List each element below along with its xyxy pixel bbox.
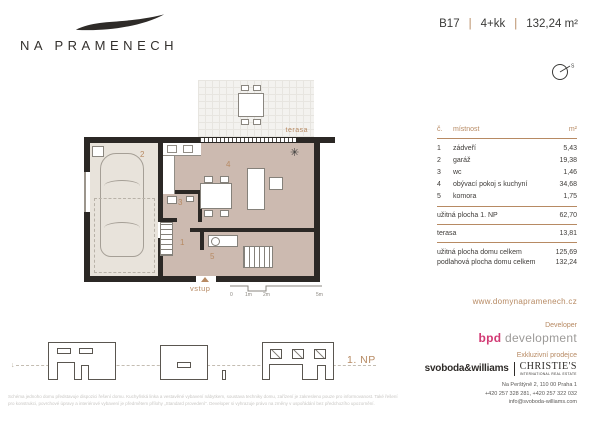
svoboda-williams-logo: svoboda&williams — [425, 363, 509, 374]
table-row: 3 wc 1,46 — [437, 166, 577, 178]
terrace-chair — [253, 119, 261, 125]
christies-wordmark: CHRISTIE'S — [520, 361, 577, 372]
dining-table — [200, 183, 232, 209]
terrace-label: terasa — [286, 127, 308, 134]
dining-chair — [204, 210, 213, 217]
terrace-chair — [241, 85, 249, 91]
dining-chair — [220, 176, 229, 183]
window — [270, 349, 282, 359]
row-area: 1,75 — [563, 193, 577, 200]
unit-id: B17 — [439, 18, 459, 30]
seller-label: Exkluzivní prodejce — [517, 352, 577, 359]
table-row: 2 garáž 19,38 — [437, 154, 577, 166]
subtotal-name: užitná plocha 1. NP — [437, 212, 559, 219]
total-usable-row: užitná plocha domu celkem 125,69 — [437, 247, 577, 257]
kitchen-counter — [163, 143, 201, 156]
christies-subtitle: INTERNATIONAL REAL ESTATE — [520, 372, 577, 376]
table-header: č. místnost m² — [437, 126, 577, 138]
dining-chair — [220, 210, 229, 217]
stairs — [243, 246, 273, 268]
subtotal-area: 62,70 — [559, 212, 577, 219]
window — [79, 348, 93, 354]
room-table: č. místnost m² 1 zádveří 5,43 2 garáž 19… — [437, 126, 577, 271]
logo-swoosh-icon — [72, 12, 168, 34]
subtotal-terrace-row: terasa 13,81 — [437, 225, 577, 242]
row-number: 2 — [437, 157, 453, 164]
row-area: 5,43 — [563, 145, 577, 152]
window — [292, 349, 304, 359]
elevation-side — [160, 345, 208, 380]
row-area: 19,38 — [559, 157, 577, 164]
sofa — [247, 168, 265, 210]
table-row: 4 obývací pokoj s kuchyní 34,68 — [437, 179, 577, 191]
logo-text: NA PRAMENECH — [20, 38, 178, 53]
washer-unit — [208, 235, 238, 247]
header-area: m² — [569, 126, 577, 133]
plant-icon: ✳ — [290, 146, 299, 159]
garage-door — [57, 362, 75, 380]
entrance-arrow-icon — [201, 277, 209, 282]
total-name: užitná plocha domu celkem — [437, 249, 556, 256]
row-name: wc — [453, 169, 563, 176]
subtotal-area: 13,81 — [559, 230, 577, 237]
entrance-label: vstup — [190, 284, 210, 293]
door — [81, 365, 89, 380]
scale-1m: 1m — [245, 292, 252, 298]
row-number: 1 — [437, 145, 453, 152]
room-label-2: 2 — [140, 150, 144, 159]
unit-layout: 4+kk — [481, 18, 506, 30]
floor-level-label: 1. NP — [347, 354, 376, 366]
contact-phones: +420 257 328 281, +420 257 322 032 — [485, 390, 577, 399]
developer-label: Developer — [545, 322, 577, 329]
disclaimer-text: Schéma jednoho domu představuje dispozic… — [8, 393, 408, 407]
room-label-3: 3 — [178, 198, 182, 207]
bpd-logo: bpd — [478, 331, 501, 345]
post — [222, 370, 226, 380]
sink-icon — [186, 196, 194, 202]
shelf-cabinet — [160, 222, 173, 256]
car-windshield-line — [104, 180, 140, 192]
total-area: 132,24 — [556, 259, 577, 266]
window — [314, 349, 326, 359]
row-area: 1,46 — [563, 169, 577, 176]
total-floor-row: podlahová plocha domu celkem 132,24 — [437, 257, 577, 267]
terrace-opening — [269, 364, 303, 380]
wall-segment — [314, 137, 320, 282]
terrace-chair — [241, 119, 249, 125]
floor-plan: terasa — [70, 80, 335, 315]
total-area: 125,69 — [556, 249, 577, 256]
divider — [514, 362, 515, 376]
contact-address: Na Perštýně 2, 110 00 Praha 1 — [485, 381, 577, 390]
developer-logo: bpd development — [478, 331, 577, 345]
wall-segment — [190, 228, 314, 232]
room-label-4: 4 — [226, 160, 230, 169]
toilet-icon — [167, 196, 177, 204]
scale-bar: 0 1m 2m 5m — [230, 281, 325, 303]
north-label: S — [571, 64, 575, 70]
garage-door-opening — [84, 172, 90, 212]
living-room-floor — [163, 143, 314, 276]
row-number: 5 — [437, 193, 453, 200]
terrace-area: terasa — [198, 80, 314, 137]
utility-box — [92, 146, 104, 157]
window — [177, 362, 191, 368]
disclaimer-line-2: pro konstrukci, povrchové úpravy a inter… — [8, 400, 408, 407]
unit-area: 132,24 m² — [526, 18, 578, 30]
sliding-glass-door — [200, 137, 296, 143]
table-row: 5 komora 1,75 — [437, 191, 577, 203]
header-number: č. — [437, 126, 453, 133]
disclaimer-line-1: Schéma jednoho domu představuje dispozic… — [8, 393, 408, 400]
header-name: místnost — [453, 126, 569, 133]
level-arrow-icon: ↓ — [11, 362, 15, 369]
contact-email: info@svoboda-williams.com — [485, 398, 577, 407]
elevation-rear — [262, 342, 334, 380]
scale-5m: 5m — [316, 292, 323, 298]
total-name: podlahová plocha domu celkem — [437, 259, 556, 266]
brochure-page: NA PRAMENECH B17 | 4+kk | 132,24 m² S te… — [0, 0, 600, 424]
row-name: komora — [453, 193, 563, 200]
row-name: garáž — [453, 157, 559, 164]
room-label-5: 5 — [210, 252, 214, 261]
window — [57, 348, 71, 354]
wall-segment — [200, 232, 204, 250]
christies-logo: CHRISTIE'S INTERNATIONAL REAL ESTATE — [520, 361, 577, 376]
subtotal-name: terasa — [437, 230, 559, 237]
separator: | — [514, 18, 517, 30]
row-area: 34,68 — [559, 181, 577, 188]
unit-header: B17 | 4+kk | 132,24 m² — [439, 18, 578, 30]
table-row: 1 zádveří 5,43 — [437, 142, 577, 154]
subtotal-np-row: užitná plocha 1. NP 62,70 — [437, 207, 577, 224]
row-name: obývací pokoj s kuchyní — [453, 181, 559, 188]
scale-2m: 2m — [263, 292, 270, 298]
terrace-table — [238, 93, 264, 117]
kitchen-sink-icon — [167, 145, 177, 153]
parking-outline — [94, 198, 155, 273]
website-link[interactable]: www.domynapramenech.cz — [473, 297, 577, 306]
row-number: 4 — [437, 181, 453, 188]
scale-0: 0 — [230, 292, 233, 298]
row-number: 3 — [437, 169, 453, 176]
elevation-front — [48, 342, 116, 380]
side-table — [269, 177, 283, 190]
room-label-1: 1 — [180, 238, 184, 247]
row-name: zádveří — [453, 145, 563, 152]
dining-chair — [204, 176, 213, 183]
developer-logo-rest: development — [501, 331, 577, 345]
separator: | — [469, 18, 472, 30]
compass-icon: S — [550, 58, 576, 82]
kitchen-hob-icon — [183, 145, 193, 153]
terrace-chair — [253, 85, 261, 91]
washer-icon — [211, 237, 220, 246]
door — [317, 365, 326, 380]
contact-block: Na Perštýně 2, 110 00 Praha 1 +420 257 3… — [485, 381, 577, 407]
kitchen-counter-side — [163, 156, 175, 194]
seller-logos: svoboda&williams CHRISTIE'S INTERNATIONA… — [425, 361, 577, 376]
